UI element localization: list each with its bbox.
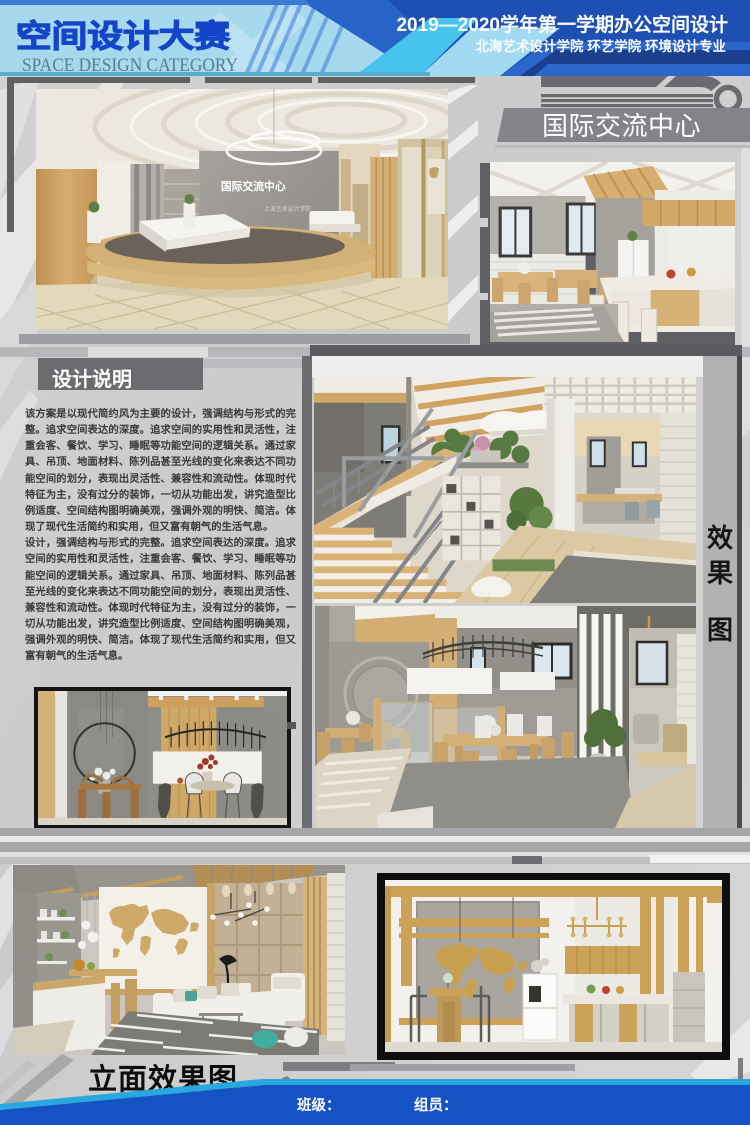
svg-text:SPACE DESIGN CATEGORY: SPACE DESIGN CATEGORY bbox=[22, 55, 238, 76]
svg-text:组员：: 组员： bbox=[414, 1096, 458, 1114]
svg-text:国际交流中心: 国际交流中心 bbox=[542, 111, 701, 141]
svg-text:班级：: 班级： bbox=[297, 1096, 341, 1114]
svg-text:空间设计大赛: 空间设计大赛 bbox=[16, 19, 231, 54]
svg-text:上海艺术设计学院: 上海艺术设计学院 bbox=[264, 205, 311, 213]
svg-text:国际交流中心: 国际交流中心 bbox=[221, 179, 286, 193]
svg-text:北海艺术设计学院 环艺学院 环境设计专业: 北海艺术设计学院 环艺学院 环境设计专业 bbox=[475, 38, 726, 54]
svg-text:2019—2020学年第一学期办公空间设计: 2019—2020学年第一学期办公空间设计 bbox=[396, 13, 728, 36]
